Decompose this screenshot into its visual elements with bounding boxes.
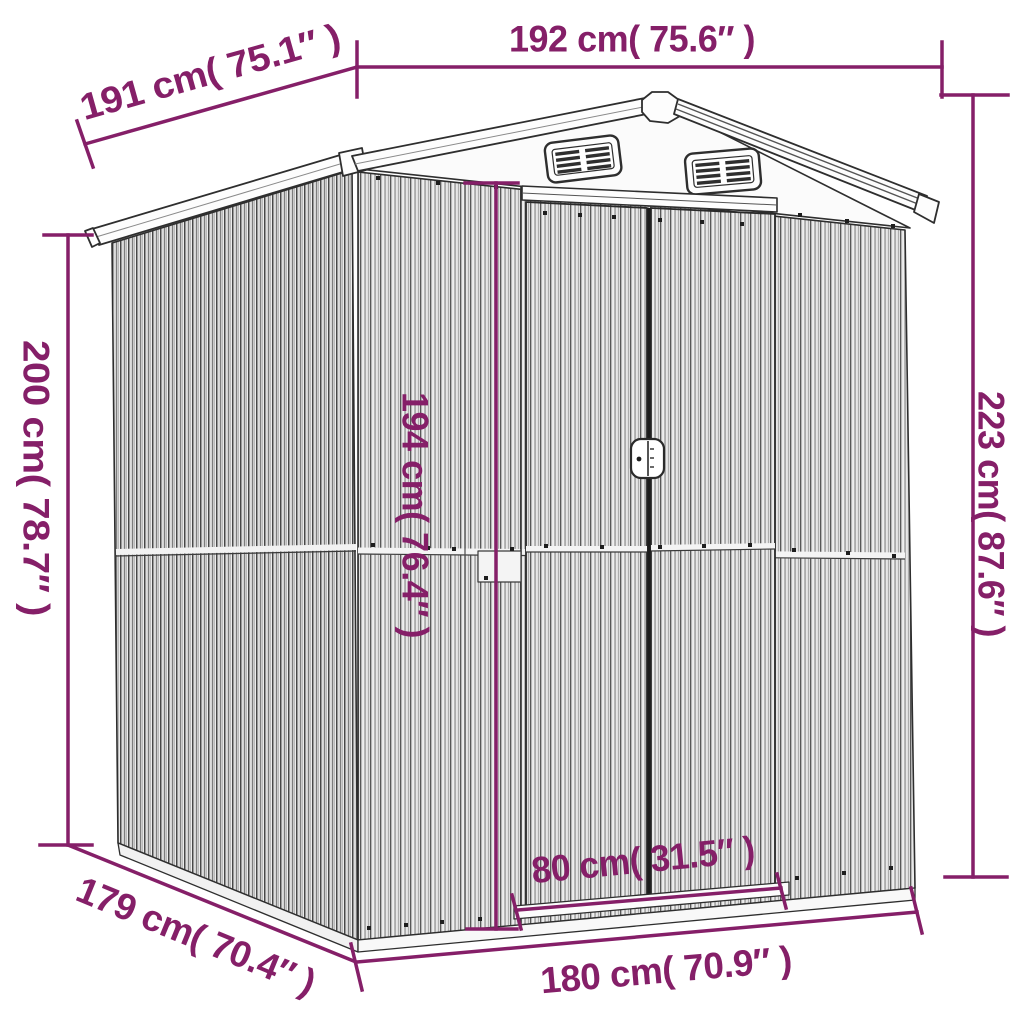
gable-vent-left	[544, 135, 622, 184]
roof-right-end-cap	[914, 194, 939, 223]
gable-vent-right	[684, 148, 761, 195]
shed-dimension-diagram: 191 cm( 75.1″ ) 192 cm( 75.6″ ) 200 cm( …	[0, 0, 1024, 1024]
label-top-width: 192 cm( 75.6″ )	[509, 19, 755, 60]
label-door-height: 194 cm( 76.4″ )	[395, 392, 436, 638]
roof-apex-cap	[642, 92, 680, 123]
sliding-doors	[514, 186, 789, 919]
label-top-depth: 191 cm( 75.1″ )	[75, 16, 344, 128]
label-right-height: 223 cm( 87.6″ )	[971, 391, 1012, 637]
door-handle	[631, 439, 664, 478]
diagram-canvas: 191 cm( 75.1″ ) 192 cm( 75.6″ ) 200 cm( …	[0, 0, 1024, 1024]
door-left	[526, 202, 647, 908]
label-base-width: 180 cm( 70.9″ )	[539, 939, 794, 1002]
side-wall	[112, 170, 358, 940]
label-left-height: 200 cm( 78.7″ )	[16, 340, 57, 616]
shed-drawing	[85, 92, 939, 952]
door-right	[651, 208, 775, 896]
